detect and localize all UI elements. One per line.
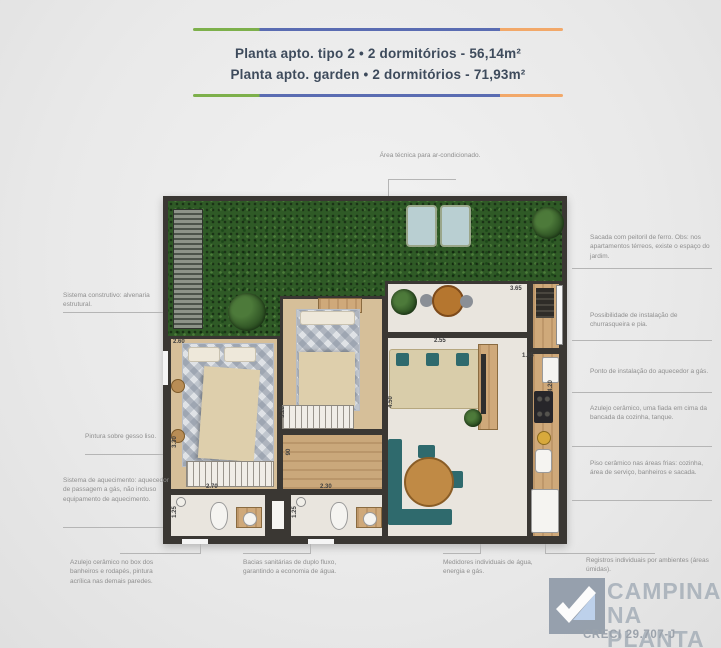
leader-bottom-2-v: [310, 544, 311, 553]
shower-head-1: [176, 497, 186, 507]
annotation-bottom-meters: Medidores individuais de água, energia e…: [443, 558, 543, 577]
window-bedroom1: [163, 351, 168, 385]
annotation-right-heater: Ponto de instalação do aquecedor a gás.: [590, 367, 710, 376]
vanity-1: [236, 507, 262, 528]
annotation-right-ceramic-floor: Piso cerâmico nas áreas frias: cozinha, …: [590, 459, 710, 478]
kitchen-sink: [535, 449, 552, 473]
wardrobe-bedroom2: [282, 405, 354, 429]
single-bed: [296, 309, 360, 411]
brand-logo: CAMPINAS NA PLANTA CRECI 29.707-J: [545, 574, 721, 648]
balcony-plant: [391, 289, 417, 315]
leader-top-h: [388, 179, 456, 180]
garden-bush: [228, 293, 266, 331]
dining-bench-bottom: [388, 509, 452, 525]
leader-bottom-1-v: [200, 544, 201, 553]
title-line-2: Planta apto. garden • 2 dormitórios - 71…: [173, 64, 583, 85]
sofa-pillow-2: [426, 353, 439, 366]
annotation-bottom-valves: Registros individuais por ambientes (áre…: [586, 556, 711, 575]
basin-2: [363, 512, 377, 526]
annotation-bottom-bath-tiles: Azulejo cerâmico no box dos banheiros e …: [70, 558, 170, 586]
refrigerator: [531, 489, 559, 533]
garden-grass-top: [168, 201, 562, 281]
leader-bottom-4-v: [545, 544, 546, 553]
annotation-left-paint: Pintura sobre gesso liso.: [85, 432, 163, 441]
annotation-right-barbecue: Possibilidade de instalação de churrasqu…: [590, 311, 712, 330]
annotation-ac-area: Área técnica para ar-condicionado.: [375, 151, 485, 160]
dim-living-depth: 4.50: [388, 391, 394, 413]
dim-kitchen-depth: 4.20: [548, 375, 554, 397]
sun-lounger-right: [440, 205, 471, 247]
kitchen-bowl: [537, 431, 551, 445]
floor-plan: 3.65 2.55 4.50 1.65 4.20 2.60: [163, 196, 567, 544]
window-bath1: [182, 539, 208, 544]
bed-pillow-left: [188, 347, 220, 362]
sofa-pillow-3: [456, 353, 469, 366]
single-bed-pillow: [300, 311, 355, 325]
living-plant: [464, 409, 482, 427]
dim-service-width: 1.65: [522, 353, 534, 359]
dining-table: [404, 457, 454, 507]
header-accent-bar-top: [193, 28, 563, 31]
hallway: [280, 432, 385, 492]
rule-right-4: [572, 446, 712, 447]
toilet-1: [210, 502, 228, 530]
annotation-bottom-toilets: Bacias sanitárias de duplo fluxo, garant…: [243, 558, 343, 577]
dim-balcony-width: 3.65: [510, 286, 522, 292]
annotation-left-heating: Sistema de aquecimento: aquecedor de pas…: [63, 476, 169, 504]
balcony-pouf-right: [460, 295, 473, 308]
sun-lounger-left: [406, 205, 437, 247]
rule-right-5: [572, 500, 712, 501]
annotation-right-tiles: Azulejo cerâmico, uma fiada em cima da b…: [590, 404, 712, 423]
logo-text-line2: NA PLANTA: [607, 603, 721, 648]
dim-hallway-width: 90: [286, 441, 292, 463]
garden-deck-bench: [173, 209, 203, 329]
leader-bottom-4-h: [545, 553, 655, 554]
shower-head-2: [296, 497, 306, 507]
wardrobe-bedroom1: [186, 461, 274, 487]
sofa-pillow-1: [396, 353, 409, 366]
dim-bath1-width: 2.70: [206, 484, 218, 490]
annotation-right-balcony: Sacada com peitoril de ferro. Obs: nos a…: [590, 233, 712, 261]
window-bath2: [308, 539, 334, 544]
barbecue-grill: [536, 288, 554, 318]
nightstand-1: [171, 379, 185, 393]
header-accent-bar-bottom: [193, 94, 563, 97]
dim-bath2-width: 2.30: [320, 484, 332, 490]
title-line-1: Planta apto. tipo 2 • 2 dormitórios - 56…: [173, 43, 583, 64]
shaft: [272, 501, 284, 529]
toilet-2: [330, 502, 348, 530]
annotation-left-structure: Sistema construtivo: alvenaria estrutura…: [63, 291, 163, 310]
rule-right-3: [572, 392, 712, 393]
leader-top-v: [388, 179, 389, 196]
rule-left-3: [63, 527, 163, 528]
dim-bedroom1-depth: 3.30: [172, 431, 178, 453]
rule-left-2: [85, 454, 163, 455]
tv: [481, 354, 486, 414]
bed-blanket: [198, 366, 260, 462]
leader-bottom-2-h: [243, 553, 311, 554]
technical-area-strip: [556, 285, 563, 345]
rule-right-1: [572, 268, 712, 269]
bed-pillow-right: [224, 347, 256, 362]
single-bed-blanket: [299, 352, 355, 406]
basin-1: [243, 512, 257, 526]
logo-creci: CRECI 29.707-J: [583, 629, 676, 641]
leader-bottom-3-h: [443, 553, 481, 554]
rule-left-1: [63, 312, 163, 313]
shaft-wall: [268, 492, 288, 539]
logo-text-line1: CAMPINAS: [607, 579, 721, 603]
page: Planta apto. tipo 2 • 2 dormitórios - 56…: [0, 0, 721, 648]
leader-bottom-1-h: [120, 553, 201, 554]
leader-bottom-3-v: [480, 544, 481, 553]
rule-right-2: [572, 340, 712, 341]
dim-bedroom2-depth: 3.20: [280, 401, 286, 423]
vanity-2: [356, 507, 382, 528]
logo-check-icon: [549, 578, 605, 634]
page-title: Planta apto. tipo 2 • 2 dormitórios - 56…: [173, 43, 583, 85]
garden-plant-corner: [532, 207, 564, 239]
dim-living-width: 2.55: [434, 338, 446, 344]
